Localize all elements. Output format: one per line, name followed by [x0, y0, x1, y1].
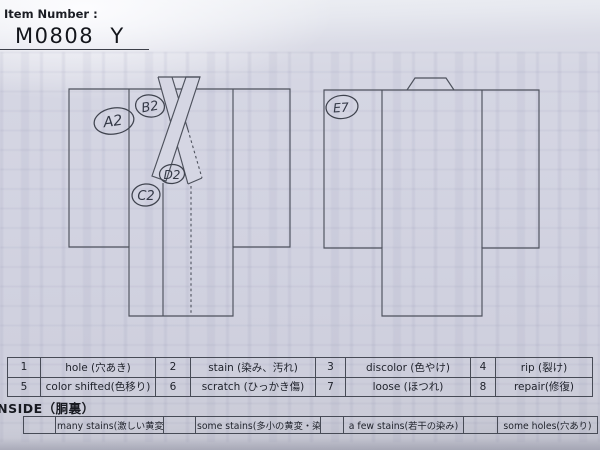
condition-checkbox-cell [321, 417, 344, 434]
annotation-label-d2: D2 [164, 168, 181, 182]
kimono-front-diagram [69, 77, 290, 316]
legend-label: repair(修復) [496, 377, 593, 397]
condition-label: a few stains(若干の染み) [344, 417, 464, 434]
condition-checkbox-cell [464, 417, 498, 434]
annotation-label-e7: E7 [333, 99, 350, 115]
legend-row-2: 5 color shifted(色移り) 6 scratch (ひっかき傷) 7… [8, 377, 593, 397]
inside-row: many stains(激しい黄変・染み) some stains(多小の黄変・… [24, 417, 598, 434]
legend-num: 8 [471, 377, 496, 397]
inside-condition-table: many stains(激しい黄変・染み) some stains(多小の黄変・… [23, 416, 598, 434]
legend-num: 6 [156, 377, 191, 397]
condition-checkbox-cell [164, 417, 196, 434]
inspection-sheet-photo: Item Number : M0808 Y A [0, 0, 600, 450]
item-number-label: Item Number : [4, 7, 98, 21]
legend-label: discolor (色やけ) [346, 358, 471, 378]
inside-section-heading: INSIDE（胴裏） [0, 398, 95, 417]
legend-num: 5 [8, 377, 41, 397]
legend-num: 7 [316, 377, 346, 397]
annotation-label-b2: B2 [140, 99, 160, 117]
back-collar [407, 78, 454, 90]
annotation-label-a2: A2 [101, 113, 123, 132]
legend-num: 3 [316, 358, 346, 378]
annotation-label-c2: C2 [137, 189, 154, 204]
kimono-back-diagram [324, 78, 539, 316]
defect-legend-table: 1 hole (穴あき) 2 stain (染み、汚れ) 3 discolor … [7, 357, 593, 397]
legend-row-1: 1 hole (穴あき) 2 stain (染み、汚れ) 3 discolor … [8, 358, 593, 378]
legend-label: hole (穴あき) [41, 358, 156, 378]
legend-num: 1 [8, 358, 41, 378]
item-number-underline [0, 49, 149, 50]
legend-label: scratch (ひっかき傷) [191, 377, 316, 397]
item-number-value: M0808 Y [15, 24, 125, 48]
legend-num: 4 [471, 358, 496, 378]
legend-num: 2 [156, 358, 191, 378]
annotations: A2 B2 C2 D2 E7 [92, 93, 359, 207]
back-panel-seams [382, 90, 482, 248]
condition-label: some stains(多小の黄変・染み) [196, 417, 321, 434]
condition-label: many stains(激しい黄変・染み) [56, 417, 164, 434]
legend-label: color shifted(色移り) [41, 377, 156, 397]
back-silhouette [324, 90, 539, 316]
legend-label: stain (染み、汚れ) [191, 358, 316, 378]
legend-label: loose (ほつれ) [346, 377, 471, 397]
legend-label: rip (裂け) [496, 358, 593, 378]
condition-label: some holes(穴あり) [498, 417, 598, 434]
condition-checkbox-cell [24, 417, 56, 434]
